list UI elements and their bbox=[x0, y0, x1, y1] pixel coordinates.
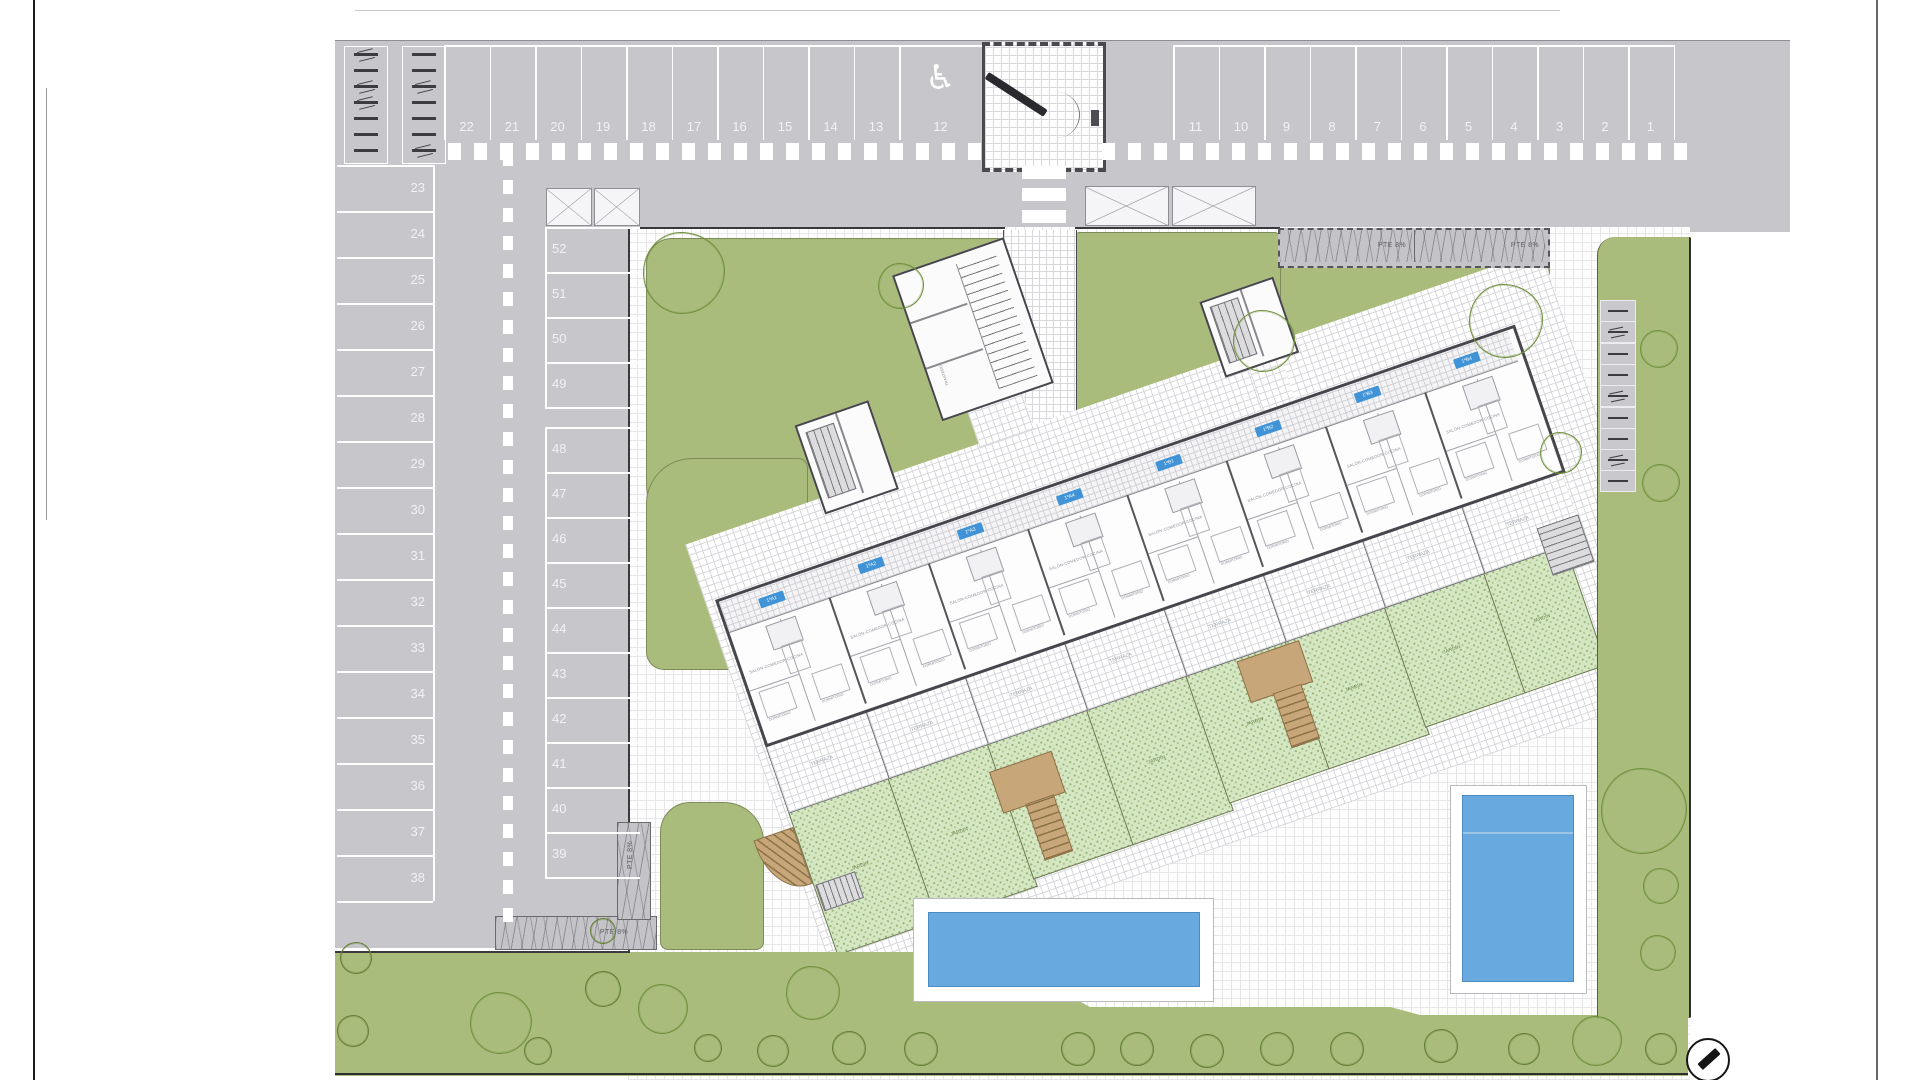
road-centerline-dash bbox=[503, 516, 513, 530]
crosswalk-dash bbox=[786, 143, 799, 160]
parking-number: 8 bbox=[1310, 120, 1355, 133]
crosswalk-dash bbox=[526, 143, 539, 160]
stall-divider bbox=[545, 562, 640, 564]
parking-number: 18 bbox=[626, 120, 671, 133]
rack-bar bbox=[354, 133, 378, 136]
crosswalk-dash bbox=[1440, 143, 1453, 160]
road-centerline-dash bbox=[503, 320, 513, 334]
crosswalk-dash bbox=[1284, 143, 1297, 160]
crosswalk-dash bbox=[1492, 143, 1505, 160]
stall-divider bbox=[545, 652, 640, 654]
stall-divider bbox=[545, 272, 640, 274]
bush-icon bbox=[1330, 1032, 1364, 1066]
crosswalk-dash bbox=[1596, 143, 1609, 160]
drawing-annotations: 22212019181716151413♿1211109876543212324… bbox=[0, 0, 1920, 1080]
crosswalk-dash bbox=[630, 143, 643, 160]
rack-bar bbox=[412, 69, 436, 72]
parking-number: 9 bbox=[1264, 120, 1309, 133]
parking-number: 36 bbox=[337, 779, 425, 792]
parking-number: 12 bbox=[899, 120, 982, 133]
parking-number: 5 bbox=[1446, 120, 1491, 133]
bush-icon bbox=[694, 1034, 722, 1062]
road-centerline-dash bbox=[503, 432, 513, 446]
crosswalk-dash bbox=[1622, 143, 1635, 160]
rack-bar bbox=[412, 133, 436, 136]
road-centerline-dash bbox=[503, 572, 513, 586]
crosswalk-bar bbox=[1022, 210, 1066, 223]
crosswalk-dash bbox=[552, 143, 565, 160]
parking-number: 20 bbox=[535, 120, 580, 133]
tree-icon bbox=[643, 232, 725, 314]
parking-number: 7 bbox=[1355, 120, 1400, 133]
road-centerline-dash bbox=[503, 404, 513, 418]
tree-icon bbox=[470, 992, 532, 1054]
stall-back-line bbox=[433, 165, 435, 901]
crosswalk-dash bbox=[708, 143, 721, 160]
parking-number: 47 bbox=[552, 487, 612, 500]
crosswalk-dash bbox=[1544, 143, 1557, 160]
stall-divider bbox=[545, 607, 640, 609]
parking-number: 52 bbox=[552, 242, 612, 255]
parking-number: 37 bbox=[337, 825, 425, 838]
moto-icon bbox=[415, 80, 433, 94]
parking-number: 51 bbox=[552, 287, 612, 300]
bush-icon bbox=[585, 971, 621, 1007]
crosswalk-dash bbox=[942, 143, 955, 160]
parking-number: 46 bbox=[552, 532, 612, 545]
stall-divider bbox=[545, 362, 640, 364]
road-centerline-dash bbox=[503, 152, 513, 166]
parking-number: 48 bbox=[552, 442, 612, 455]
crosswalk-dash bbox=[474, 143, 487, 160]
stall-divider bbox=[337, 717, 433, 719]
parking-number: 19 bbox=[581, 120, 626, 133]
parking-number: 35 bbox=[337, 733, 425, 746]
stall-divider bbox=[545, 407, 640, 409]
crosswalk-bar bbox=[1022, 166, 1066, 179]
road-centerline-dash bbox=[503, 796, 513, 810]
stall-divider bbox=[337, 533, 433, 535]
road-centerline-dash bbox=[503, 712, 513, 726]
crosswalk-dash bbox=[682, 143, 695, 160]
moto-icon bbox=[357, 96, 375, 110]
tree-icon bbox=[1640, 330, 1678, 368]
road-centerline-dash bbox=[503, 348, 513, 362]
stall-divider bbox=[1674, 45, 1676, 140]
stall-divider bbox=[337, 441, 433, 443]
crosswalk-dash bbox=[1388, 143, 1401, 160]
bush-icon bbox=[1061, 1032, 1095, 1066]
tree-icon bbox=[1233, 310, 1295, 372]
site-plan-canvas: JARDÍNJARDÍNJARDÍNJARDÍNJARDÍNJARDÍNJARD… bbox=[0, 0, 1920, 1080]
stall-divider bbox=[337, 211, 433, 213]
parking-number: 10 bbox=[1219, 120, 1264, 133]
road-centerline-dash bbox=[503, 376, 513, 390]
road-centerline-dash bbox=[503, 544, 513, 558]
stall-divider bbox=[337, 395, 433, 397]
parking-number: 38 bbox=[337, 871, 425, 884]
stall-divider bbox=[337, 901, 433, 903]
bush-icon bbox=[832, 1031, 866, 1065]
road-centerline-dash bbox=[503, 264, 513, 278]
road-centerline-dash bbox=[503, 236, 513, 250]
parking-number: 34 bbox=[337, 687, 425, 700]
bush-icon bbox=[1508, 1033, 1540, 1065]
parking-number: 42 bbox=[552, 712, 612, 725]
bush-icon bbox=[904, 1032, 938, 1066]
crosswalk-dash bbox=[916, 143, 929, 160]
bush-icon bbox=[590, 918, 616, 944]
bush-icon bbox=[1424, 1029, 1458, 1063]
crosswalk-dash bbox=[604, 143, 617, 160]
road-centerline-dash bbox=[503, 628, 513, 642]
crosswalk-dash bbox=[1310, 143, 1323, 160]
parking-number: 4 bbox=[1492, 120, 1537, 133]
crosswalk-dash bbox=[448, 143, 461, 160]
rack-bar bbox=[354, 149, 378, 152]
parking-number: 21 bbox=[490, 120, 535, 133]
crosswalk-dash bbox=[1336, 143, 1349, 160]
road-centerline-dash bbox=[503, 880, 513, 894]
crosswalk-dash bbox=[1648, 143, 1661, 160]
crosswalk-dash bbox=[656, 143, 669, 160]
stall-divider bbox=[545, 787, 640, 789]
stall-divider bbox=[545, 472, 640, 474]
road-centerline-dash bbox=[503, 656, 513, 670]
road-centerline-dash bbox=[503, 488, 513, 502]
parking-number: 40 bbox=[552, 802, 612, 815]
crosswalk-dash bbox=[1206, 143, 1219, 160]
stall-divider bbox=[337, 671, 433, 673]
crosswalk-dash bbox=[968, 143, 981, 160]
crosswalk-dash bbox=[734, 143, 747, 160]
parking-number: 30 bbox=[337, 503, 425, 516]
moto-icon bbox=[357, 48, 375, 62]
road-centerline-dash bbox=[503, 208, 513, 222]
parking-number: 39 bbox=[552, 847, 612, 860]
tree-icon bbox=[1640, 935, 1676, 971]
handicap-icon: ♿ bbox=[899, 58, 982, 98]
tree-icon bbox=[1469, 284, 1543, 358]
tree-icon bbox=[1540, 432, 1582, 474]
crosswalk-bar bbox=[1022, 188, 1066, 201]
crosswalk-dash bbox=[1154, 143, 1167, 160]
rack-bar bbox=[412, 117, 436, 120]
stall-divider bbox=[545, 877, 640, 879]
parking-number: 27 bbox=[337, 365, 425, 378]
rack-bar bbox=[354, 69, 378, 72]
crosswalk-dash bbox=[1674, 143, 1687, 160]
parking-number: 29 bbox=[337, 457, 425, 470]
stall-divider bbox=[545, 742, 640, 744]
north-arrow-bar bbox=[1697, 1048, 1720, 1070]
tree-icon bbox=[1643, 868, 1679, 904]
parking-number: 33 bbox=[337, 641, 425, 654]
parking-number: 15 bbox=[763, 120, 808, 133]
stall-divider bbox=[337, 165, 433, 167]
stall-divider bbox=[545, 427, 640, 429]
stall-divider bbox=[545, 832, 640, 834]
bush-icon bbox=[1260, 1032, 1294, 1066]
stall-divider bbox=[545, 517, 640, 519]
crosswalk-dash bbox=[1570, 143, 1583, 160]
stall-divider bbox=[337, 579, 433, 581]
parking-number: 16 bbox=[717, 120, 762, 133]
crosswalk-dash bbox=[1258, 143, 1271, 160]
crosswalk-dash bbox=[812, 143, 825, 160]
parking-number: 43 bbox=[552, 667, 612, 680]
tree-icon bbox=[786, 966, 840, 1020]
parking-number: 24 bbox=[337, 227, 425, 240]
bush-icon bbox=[757, 1035, 789, 1067]
parking-number: 32 bbox=[337, 595, 425, 608]
parking-number: 1 bbox=[1628, 120, 1673, 133]
parking-number: 23 bbox=[337, 181, 425, 194]
stall-divider bbox=[337, 257, 433, 259]
stall-back-line bbox=[1173, 45, 1674, 47]
north-arrow-icon bbox=[1686, 1038, 1730, 1080]
parking-number: 22 bbox=[444, 120, 489, 133]
tree-icon bbox=[878, 263, 924, 309]
bush-icon bbox=[1645, 1033, 1677, 1065]
parking-number: 6 bbox=[1401, 120, 1446, 133]
parking-number: 28 bbox=[337, 411, 425, 424]
parking-number: 25 bbox=[337, 273, 425, 286]
bike-rack-column bbox=[344, 46, 388, 164]
tree-icon bbox=[1572, 1016, 1622, 1066]
parking-number: 50 bbox=[552, 332, 612, 345]
parking-number: 44 bbox=[552, 622, 612, 635]
bush-icon bbox=[340, 942, 372, 974]
parking-number: 49 bbox=[552, 377, 612, 390]
stall-divider bbox=[337, 809, 433, 811]
road-centerline-dash bbox=[503, 600, 513, 614]
bush-icon bbox=[337, 1015, 369, 1047]
parking-number: 41 bbox=[552, 757, 612, 770]
tree-icon bbox=[1601, 768, 1687, 854]
road-centerline-dash bbox=[503, 292, 513, 306]
stall-divider bbox=[337, 763, 433, 765]
road-centerline-dash bbox=[503, 460, 513, 474]
road-centerline-dash bbox=[503, 740, 513, 754]
tree-icon bbox=[1642, 464, 1680, 502]
crosswalk-dash bbox=[760, 143, 773, 160]
rack-bar bbox=[354, 117, 378, 120]
crosswalk-dash bbox=[1180, 143, 1193, 160]
crosswalk-dash bbox=[1232, 143, 1245, 160]
road-centerline-dash bbox=[503, 180, 513, 194]
bush-icon bbox=[1190, 1034, 1224, 1068]
stall-divider bbox=[337, 303, 433, 305]
crosswalk-dash bbox=[1102, 143, 1115, 160]
moto-icon bbox=[357, 80, 375, 94]
crosswalk-dash bbox=[1128, 143, 1141, 160]
parking-number: 11 bbox=[1173, 120, 1218, 133]
stall-divider bbox=[545, 697, 640, 699]
road-centerline-dash bbox=[503, 908, 513, 922]
rack-bar bbox=[412, 101, 436, 104]
rack-bar bbox=[412, 53, 436, 56]
parking-number: 2 bbox=[1583, 120, 1628, 133]
parking-number: 3 bbox=[1537, 120, 1582, 133]
bush-icon bbox=[1120, 1032, 1154, 1066]
stall-divider bbox=[337, 855, 433, 857]
stall-divider bbox=[545, 227, 640, 229]
parking-number: 17 bbox=[672, 120, 717, 133]
crosswalk-dash bbox=[1362, 143, 1375, 160]
parking-number: 13 bbox=[854, 120, 899, 133]
crosswalk-dash bbox=[1414, 143, 1427, 160]
moto-icon bbox=[415, 144, 433, 158]
stall-divider bbox=[545, 317, 640, 319]
crosswalk-dash bbox=[1466, 143, 1479, 160]
parking-number: 31 bbox=[337, 549, 425, 562]
road-centerline-dash bbox=[503, 852, 513, 866]
stall-divider bbox=[337, 625, 433, 627]
parking-number: 14 bbox=[808, 120, 853, 133]
crosswalk-dash bbox=[838, 143, 851, 160]
crosswalk-dash bbox=[1518, 143, 1531, 160]
road-centerline-dash bbox=[503, 768, 513, 782]
crosswalk-dash bbox=[890, 143, 903, 160]
road-centerline-dash bbox=[503, 684, 513, 698]
parking-number: 45 bbox=[552, 577, 612, 590]
stall-divider bbox=[337, 487, 433, 489]
tree-icon bbox=[638, 984, 688, 1034]
bush-icon bbox=[524, 1037, 552, 1065]
road-centerline-dash bbox=[503, 824, 513, 838]
crosswalk-dash bbox=[864, 143, 877, 160]
stall-divider bbox=[337, 349, 433, 351]
parking-number: 26 bbox=[337, 319, 425, 332]
crosswalk-dash bbox=[578, 143, 591, 160]
bike-rack-column bbox=[402, 46, 446, 164]
